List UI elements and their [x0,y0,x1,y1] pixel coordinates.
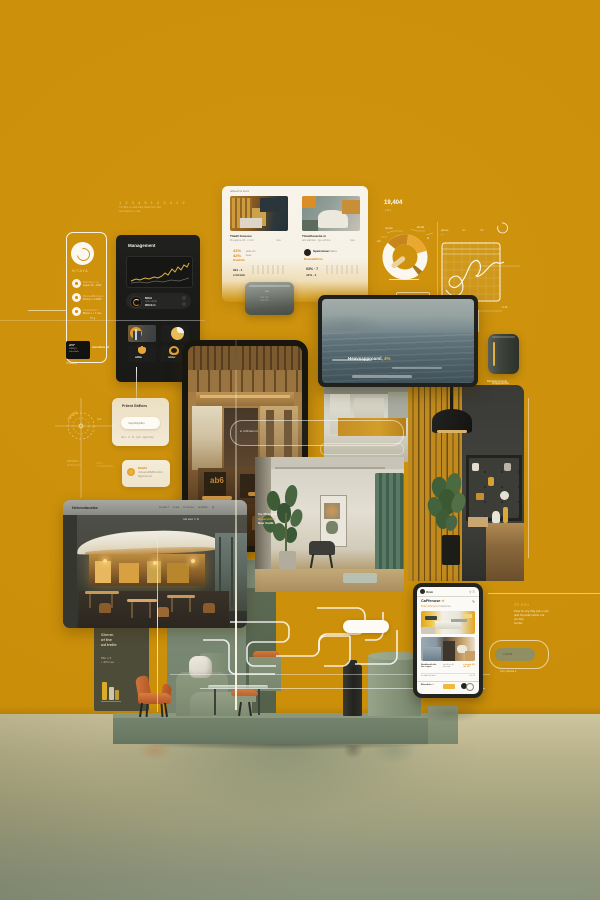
svg-text:y t: y t [441,233,444,236]
svg-text:ms: ms [462,229,466,232]
svg-text:mrr: mrr [377,240,381,243]
svg-text:4.2: 4.2 [97,417,102,421]
svg-text:bt: bt [427,237,429,240]
svg-text:rrts: rrts [480,229,484,232]
svg-text:lat wlb: lat wlb [417,226,425,229]
svg-text:4.1k: 4.1k [502,305,508,309]
svg-text:rup ttm: rup ttm [385,227,393,230]
svg-text:prices: prices [441,228,449,232]
